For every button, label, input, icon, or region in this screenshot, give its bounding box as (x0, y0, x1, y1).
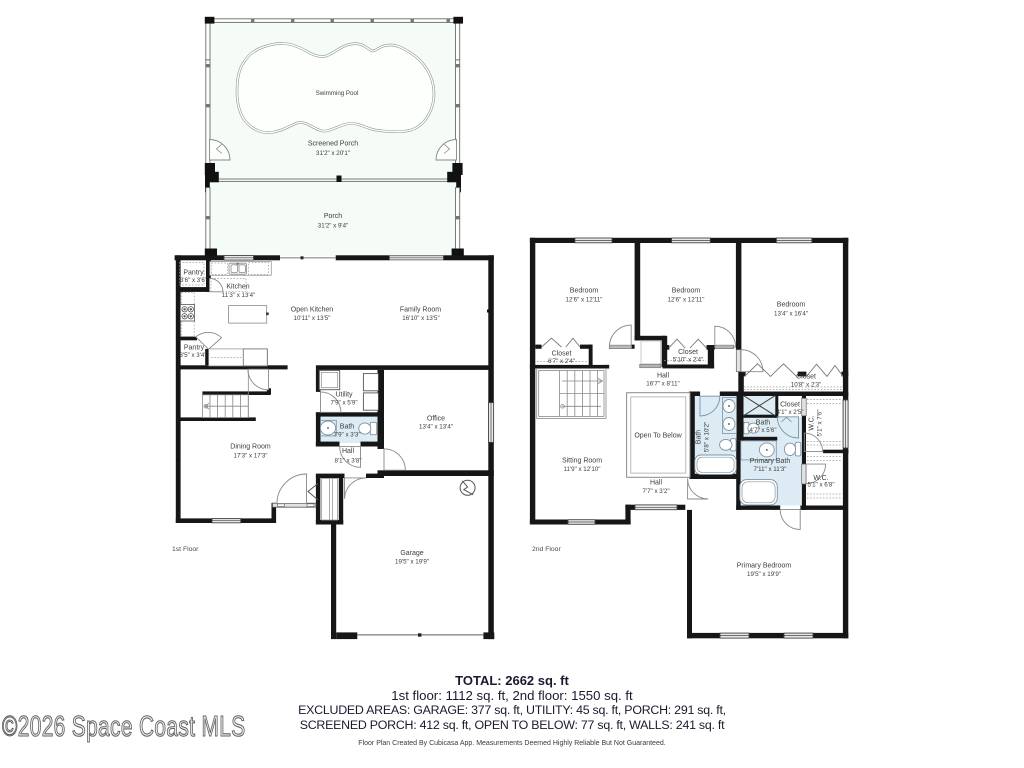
svg-text:8'1" x 3'8": 8'1" x 3'8" (334, 458, 361, 465)
svg-text:4'1" x 2'5": 4'1" x 2'5" (776, 409, 803, 416)
svg-text:Bath: Bath (696, 430, 703, 445)
svg-text:10'8" x 2'3": 10'8" x 2'3" (791, 381, 822, 388)
svg-text:19'5" x 19'9": 19'5" x 19'9" (395, 559, 429, 566)
svg-text:13'4" x 16'4": 13'4" x 16'4" (774, 311, 808, 318)
svg-text:13'4" x 13'4": 13'4" x 13'4" (419, 424, 453, 431)
svg-text:Screened Porch: Screened Porch (308, 141, 358, 148)
svg-text:Open To Below: Open To Below (634, 433, 682, 440)
svg-text:4'7" x 5'6": 4'7" x 5'6" (749, 427, 776, 434)
svg-text:W.C.: W.C. (809, 415, 816, 430)
svg-text:Swimming Pool: Swimming Pool (316, 90, 359, 97)
svg-text:3'6" x 3'6": 3'6" x 3'6" (180, 277, 207, 284)
svg-text:Family Room: Family Room (400, 307, 441, 314)
svg-text:Primary Bedroom: Primary Bedroom (737, 563, 792, 570)
svg-text:Open Kitchen: Open Kitchen (291, 307, 334, 314)
svg-text:Kitchen: Kitchen (226, 284, 249, 291)
svg-text:Closet: Closet (796, 374, 816, 381)
svg-text:Bedroom: Bedroom (672, 288, 701, 295)
svg-text:16'7" x 8'11": 16'7" x 8'11" (646, 380, 679, 387)
svg-text:Pantry: Pantry (184, 345, 205, 352)
svg-text:Porch: Porch (324, 213, 342, 220)
svg-text:Bedroom: Bedroom (570, 288, 599, 295)
svg-text:17'3" x 17'3": 17'3" x 17'3" (234, 453, 268, 460)
svg-text:11'9" x 12'10": 11'9" x 12'10" (564, 466, 601, 473)
svg-text:16'10" x 13'5": 16'10" x 13'5" (402, 315, 439, 322)
svg-text:31'2" x 9'4": 31'2" x 9'4" (318, 223, 349, 230)
svg-text:Pantry: Pantry (183, 270, 204, 277)
svg-text:2nd Floor: 2nd Floor (532, 546, 561, 553)
svg-text:Bath: Bath (756, 420, 771, 427)
svg-text:5'10" x 2'4": 5'10" x 2'4" (673, 357, 704, 364)
svg-text:12'6" x 12'11": 12'6" x 12'11" (668, 297, 705, 304)
svg-text:Closet: Closet (780, 402, 800, 409)
svg-text:5'1" x 6'8": 5'1" x 6'8" (807, 482, 834, 489)
svg-text:7'7" x 3'2": 7'7" x 3'2" (642, 488, 669, 495)
svg-text:Hall: Hall (657, 373, 670, 380)
svg-text:Hall: Hall (650, 480, 663, 487)
svg-text:Utility: Utility (335, 392, 353, 399)
svg-text:Closet: Closet (678, 349, 698, 356)
svg-text:10'11" x 13'5": 10'11" x 13'5" (294, 315, 331, 322)
svg-text:Office: Office (427, 416, 445, 423)
svg-text:3'5" x 3'4": 3'5" x 3'4" (179, 352, 206, 359)
svg-text:Primary Bath: Primary Bath (750, 458, 791, 465)
svg-text:Closet: Closet (552, 351, 572, 358)
svg-text:31'2" x 20'1": 31'2" x 20'1" (316, 150, 350, 157)
svg-text:19'5" x 19'9": 19'5" x 19'9" (747, 571, 781, 578)
svg-text:6'7" x 2'4": 6'7" x 2'4" (548, 358, 575, 365)
svg-text:7'9" x 5'9": 7'9" x 5'9" (330, 400, 357, 407)
svg-text:Bedroom: Bedroom (777, 302, 806, 309)
svg-text:5'1" x 7'6": 5'1" x 7'6" (817, 409, 824, 436)
svg-text:Sitting Room: Sitting Room (562, 458, 602, 465)
svg-text:Hall: Hall (342, 448, 355, 455)
svg-text:Bath: Bath (340, 424, 355, 431)
svg-text:1st Floor: 1st Floor (172, 546, 199, 553)
svg-text:Dining Room: Dining Room (230, 444, 271, 451)
svg-text:11'3" x 13'4": 11'3" x 13'4" (222, 292, 255, 299)
svg-text:12'6" x 12'11": 12'6" x 12'11" (566, 297, 603, 304)
svg-text:5'8" x 10'2": 5'8" x 10'2" (704, 422, 711, 453)
svg-text:7'11" x 11'3": 7'11" x 11'3" (753, 466, 786, 473)
svg-text:7'9" x 3'3": 7'9" x 3'3" (333, 432, 360, 439)
svg-text:Garage: Garage (400, 550, 423, 557)
